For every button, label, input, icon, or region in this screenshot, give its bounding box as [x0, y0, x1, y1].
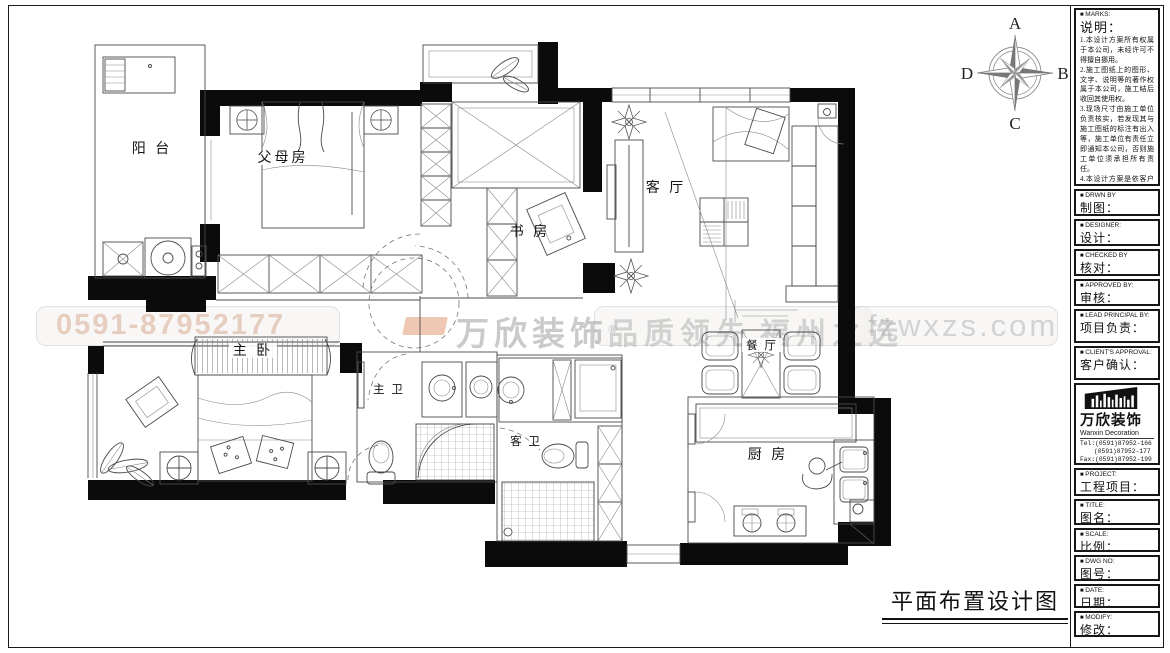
titleblock-field-client-approval: CLIENT'S APPROVAL: 客户确认：: [1074, 346, 1160, 380]
field-label-en: MODIFY:: [1080, 614, 1154, 623]
room-label-balcony: 阳 台: [132, 141, 173, 157]
compass-star: [977, 35, 1053, 111]
titleblock-field-date: DATE: 日期：: [1074, 584, 1160, 608]
room-label-living-room: 客 厅: [646, 179, 687, 196]
field-label-zh: 比例：: [1080, 540, 1154, 553]
room-label-guest-bathroom: 客 卫: [510, 434, 542, 448]
field-label-en: SCALE:: [1080, 531, 1154, 540]
field-label-zh: 项目负责：: [1080, 321, 1154, 336]
field-label-en: APPROVED BY:: [1080, 282, 1154, 291]
room-label-master-bathroom: 主 卫: [373, 383, 405, 396]
field-label-zh: 客户确认：: [1080, 358, 1154, 373]
field-label-zh: 工程项目：: [1080, 480, 1154, 495]
company-logo-box: 万欣装饰 Wanxin Decoration Tel:(0591)87952-1…: [1074, 383, 1160, 465]
titleblock-field-title: TITLE: 图名：: [1074, 499, 1160, 525]
field-label-zh: 图名：: [1080, 511, 1154, 526]
field-label-zh: 设计：: [1080, 231, 1154, 246]
contact-fax: Fax:(0591)87952-199: [1080, 456, 1154, 464]
titleblock-field-dwg-no: DWG NO: 图号：: [1074, 555, 1160, 581]
notes-label-en: MARKS:: [1080, 11, 1154, 20]
field-label-en: DATE:: [1080, 587, 1154, 596]
field-label-zh: 核对：: [1080, 261, 1154, 276]
notes-label-zh: 说明：: [1080, 20, 1154, 36]
titleblock-field-approved-by: APPROVED BY: 审核：: [1074, 279, 1160, 306]
room-labels: 阳 台 父母房 书 房 客 厅 主 卧 主 卫 客 卫 餐 厅 厨 房: [132, 141, 789, 463]
company-logo-icon: [1080, 387, 1142, 409]
field-label-zh: 图号：: [1080, 567, 1154, 582]
field-label-zh: 制图：: [1080, 201, 1154, 216]
contact-tel: Tel:(0591)87952-166: [1080, 440, 1154, 448]
caption-underline: [882, 618, 1068, 624]
room-label-kitchen: 厨 房: [748, 447, 789, 463]
compass-label-b: B: [1057, 64, 1068, 83]
field-label-en: DRWN BY: [1080, 192, 1154, 201]
field-label-en: CLIENT'S APPROVAL:: [1080, 349, 1154, 358]
field-label-en: DESIGNER:: [1080, 222, 1154, 231]
room-label-parents-room: 父母房: [258, 150, 309, 166]
note-item: 1.本设计方案所有权属于本公司，未经许可不得擅自挪用。: [1080, 36, 1154, 66]
company-name-zh: 万欣装饰: [1080, 414, 1154, 430]
titleblock-field-modify: MODIFY: 修改：: [1074, 611, 1160, 637]
field-label-en: PROJECT:: [1080, 471, 1154, 480]
compass-label-c: C: [1009, 114, 1020, 133]
company-name-en: Wanxin Decoration: [1080, 430, 1154, 439]
caption-text: 平面布置设计图: [882, 584, 1068, 616]
note-item: 4.本设计方案是依客户要求设计，经客户签字即视为同意认可，不得随意更改。: [1080, 175, 1154, 186]
drawing-caption: 平面布置设计图: [882, 584, 1068, 624]
contact-web: Web:WWW.fzwxzs.com: [1080, 464, 1154, 465]
note-item: 2.施工图纸上的图形、文字、说明等的著作权属于本公司，施工结后收回其使用权。: [1080, 66, 1154, 106]
titleblock-field-designer: DESIGNER: 设计：: [1074, 219, 1160, 246]
room-label-dining-room: 餐 厅: [746, 338, 778, 352]
titleblock-field-scale: SCALE: 比例：: [1074, 528, 1160, 552]
compass-label-d: D: [961, 64, 973, 83]
titleblock-field-checked-by: CHECKED BY 核对：: [1074, 249, 1160, 276]
titleblock-divider: [1070, 5, 1071, 647]
compass-rose: A B C D: [961, 14, 1069, 133]
titleblock-field-project: PROJECT: 工程项目：: [1074, 468, 1160, 496]
floor-plan-canvas: 阳 台 父母房 书 房 客 厅 主 卧 主 卫 客 卫 餐 厅 厨 房: [0, 0, 1170, 653]
field-label-zh: 修改：: [1080, 623, 1154, 638]
field-label-en: TITLE:: [1080, 502, 1154, 511]
field-label-zh: 审核：: [1080, 291, 1154, 306]
room-label-master-bedroom: 主 卧: [233, 343, 274, 359]
field-label-en: CHECKED BY: [1080, 252, 1154, 261]
titleblock-field-lead-principal: LEAD PRINCIPAL BY: 项目负责：: [1074, 309, 1160, 343]
field-label-zh: 日期：: [1080, 596, 1154, 609]
field-label-en: DWG NO:: [1080, 558, 1154, 567]
titleblock-notes-box: MARKS: 说明： 1.本设计方案所有权属于本公司，未经许可不得擅自挪用。 2…: [1074, 8, 1160, 186]
contact-tel-2: (0591)87952-177: [1080, 448, 1154, 456]
titleblock-field-drawn-by: DRWN BY 制图：: [1074, 189, 1160, 216]
note-item: 3.现场尺寸由施工单位负责核实，若发现其与施工图纸的标注有出入等，施工单位有责任…: [1080, 105, 1154, 175]
compass-label-a: A: [1009, 14, 1022, 33]
room-label-study: 书 房: [510, 224, 551, 240]
titleblock: MARKS: 说明： 1.本设计方案所有权属于本公司，未经许可不得擅自挪用。 2…: [1074, 8, 1160, 640]
field-label-en: LEAD PRINCIPAL BY:: [1080, 312, 1154, 321]
floorplan-sheet: { "sheet": {"caption": "平面布置设计图"}, "comp…: [0, 0, 1170, 653]
